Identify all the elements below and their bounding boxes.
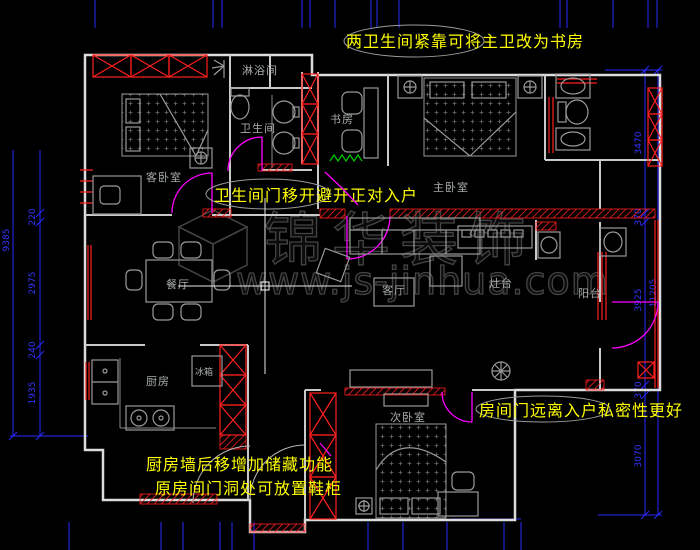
study-chair [342, 130, 362, 152]
dining-chair [153, 304, 173, 320]
dimension-lines-left: 220 2975 240 1935 9385 [2, 150, 88, 440]
study-chair [342, 92, 362, 114]
sink-icon [273, 132, 295, 154]
label-bathroom: 卫生间 [240, 121, 276, 135]
annotation-bottom-line1: 厨房墙后移增加储藏功能 [146, 455, 333, 474]
second-bed [376, 424, 446, 518]
annotation-middle: 卫生间门移开避开正对入户 [214, 186, 418, 205]
dim-left-2: 2975 [28, 272, 38, 295]
bathroom-door-arc [228, 137, 262, 171]
annotation-top: 两卫生间紧靠可将主卫改为书房 [346, 32, 584, 51]
dim-right-5: 3070 [634, 444, 644, 467]
sink-icon [273, 101, 295, 123]
floor-plan-drawing: 220 2975 240 1935 9385 3470 370 3925 370… [0, 0, 700, 550]
label-balcony: 阳台 [578, 286, 602, 300]
dim-left-1: 220 [28, 208, 38, 225]
label-master-bedroom: 主卧室 [433, 180, 469, 194]
label-stove-counter: 灶台 [489, 276, 513, 290]
radiator-zigzag [330, 155, 362, 161]
shower-head-icon [212, 60, 224, 78]
stove [126, 406, 174, 430]
label-second-bedroom: 次卧室 [390, 410, 426, 424]
toilet-icon [566, 100, 588, 124]
label-kitchen: 厨房 [146, 375, 170, 388]
toilet-icon [231, 95, 249, 119]
tv-cabinet [350, 370, 432, 387]
master-bed [424, 78, 516, 156]
study-desk [364, 88, 378, 158]
dining-chair [126, 270, 142, 290]
master-bath-fixtures [556, 74, 590, 150]
dimension-lines-top [95, 0, 657, 28]
dim-left-4: 1935 [28, 382, 38, 405]
dim-left-3: 240 [28, 341, 38, 358]
label-guest-bedroom: 客卧室 [146, 170, 182, 184]
dining-chair [181, 304, 201, 320]
dim-right-3: 3925 [634, 289, 644, 312]
cad-canvas[interactable]: 220 2975 240 1935 9385 3470 370 3925 370… [0, 0, 700, 550]
dining-chair [181, 242, 201, 258]
second-bedroom-door-arc [442, 392, 472, 422]
label-dining: 餐厅 [166, 277, 190, 291]
master-bedroom-furniture [398, 76, 542, 156]
dining-chair [153, 242, 173, 258]
dim-left-total: 9385 [2, 229, 12, 252]
guest-bedroom-furniture [93, 94, 212, 214]
dim-right-1: 3470 [634, 131, 644, 154]
wardrobe-hatch [93, 55, 207, 77]
bedroom-tv [384, 394, 428, 406]
label-shower: 淋浴间 [242, 64, 278, 77]
bedroom-chair [452, 472, 474, 490]
label-living: 客厅 [382, 283, 406, 297]
guest-chair [100, 186, 120, 204]
label-study: 书房 [330, 113, 354, 126]
annotation-bottom-line2: 原房间门洞处可放置鞋柜 [155, 479, 342, 498]
kitchen-storage-hatch [220, 345, 246, 449]
annotation-right: 房间门远离入户私密性更好 [479, 401, 683, 420]
watermark-url: www.js-jinhua.com [236, 259, 609, 303]
label-fridge: 冰箱 [195, 366, 213, 378]
